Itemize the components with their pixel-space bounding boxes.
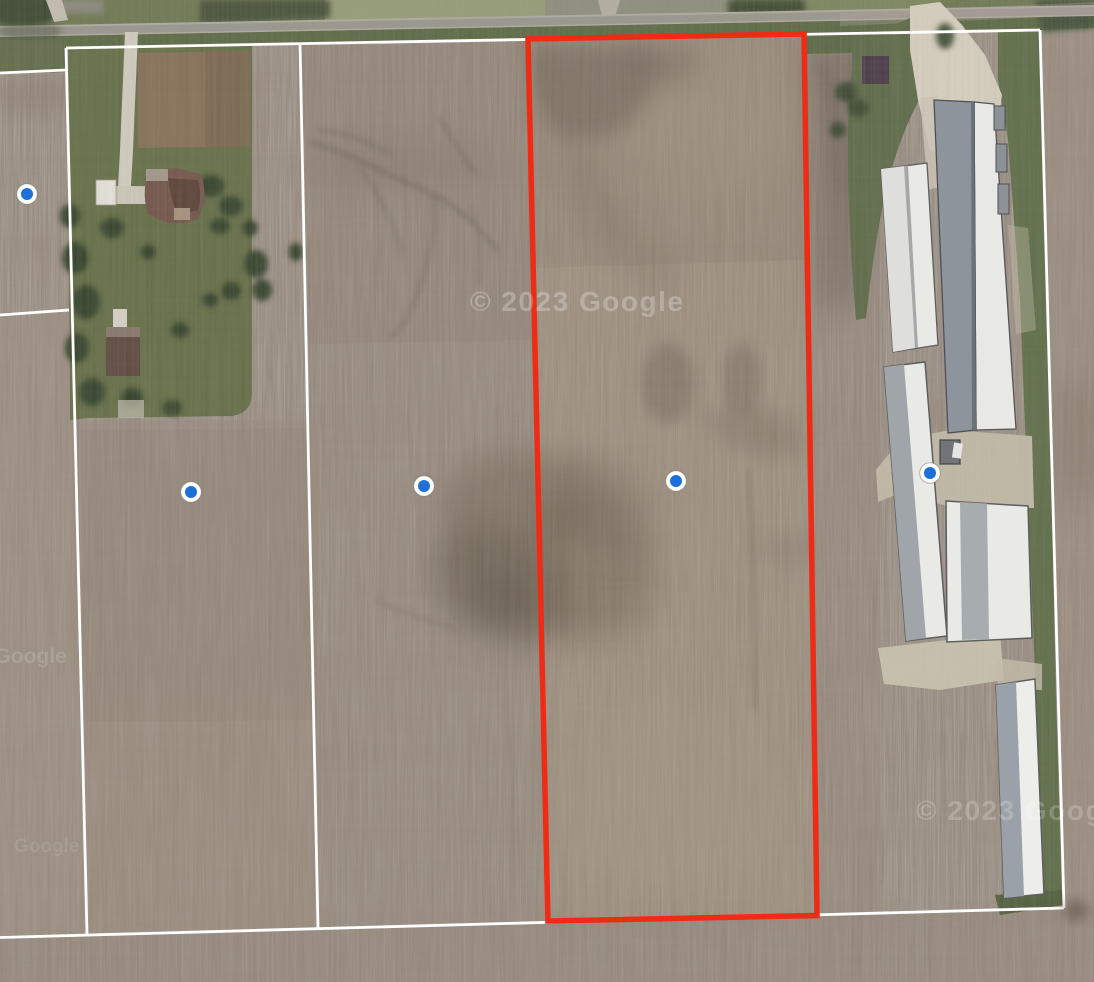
svg-text:© 2023 Goog: © 2023 Goog bbox=[916, 795, 1094, 826]
svg-text:© 2023 Google: © 2023 Google bbox=[470, 286, 684, 317]
svg-text:Google: Google bbox=[14, 836, 79, 857]
svg-text::1 Google: :1 Google bbox=[0, 645, 67, 668]
